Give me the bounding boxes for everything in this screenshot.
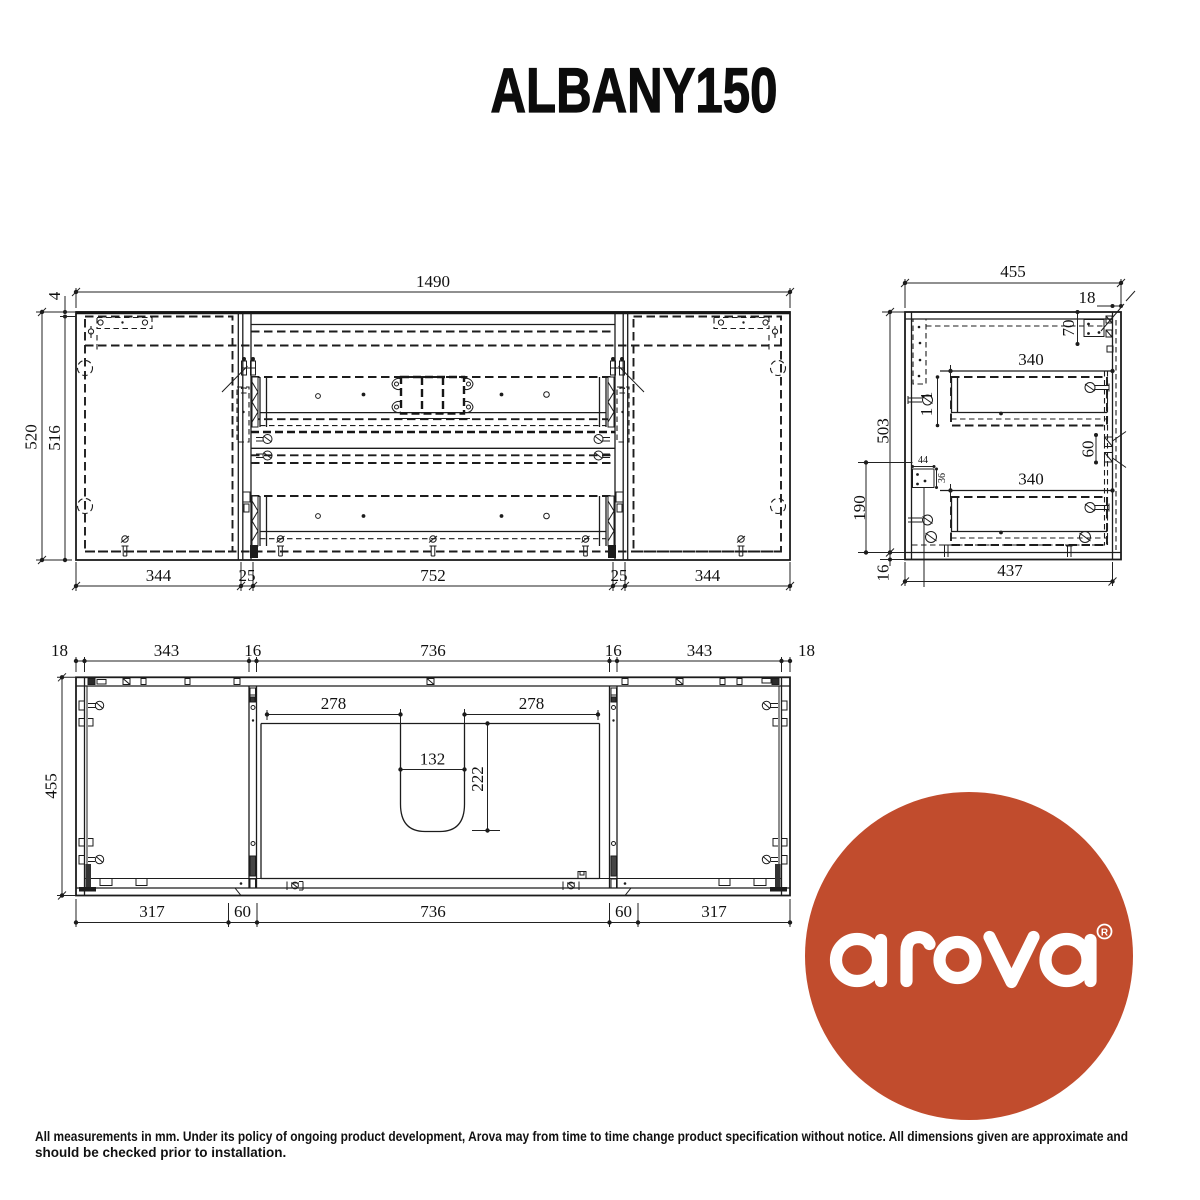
svg-text:340: 340 [1018, 350, 1044, 369]
svg-text:ALBANY150: ALBANY150 [491, 56, 778, 126]
svg-text:516: 516 [45, 425, 64, 451]
svg-text:278: 278 [519, 694, 545, 713]
svg-text:736: 736 [420, 641, 446, 660]
svg-text:1: 1 [917, 392, 936, 401]
svg-text:1: 1 [917, 408, 936, 417]
svg-text:16: 16 [244, 641, 261, 660]
svg-text:should be checked prior to ins: should be checked prior to installation. [35, 1145, 286, 1160]
svg-text:222: 222 [468, 766, 487, 792]
svg-text:503: 503 [874, 418, 893, 444]
svg-text:278: 278 [321, 694, 347, 713]
svg-text:25: 25 [611, 566, 628, 585]
svg-text:340: 340 [1018, 470, 1044, 489]
svg-text:16: 16 [605, 641, 622, 660]
svg-text:344: 344 [146, 566, 172, 585]
svg-text:36: 36 [937, 473, 948, 483]
svg-text:60: 60 [615, 902, 632, 921]
svg-text:18: 18 [1079, 288, 1096, 307]
svg-text:317: 317 [701, 902, 727, 921]
svg-text:437: 437 [997, 561, 1023, 580]
svg-text:1490: 1490 [416, 272, 450, 291]
svg-text:R: R [1101, 928, 1109, 939]
svg-text:343: 343 [687, 641, 713, 660]
svg-text:455: 455 [1000, 262, 1026, 281]
svg-text:60: 60 [1079, 441, 1098, 458]
svg-text:190: 190 [850, 495, 869, 521]
svg-text:44: 44 [918, 455, 928, 466]
svg-text:18: 18 [798, 641, 815, 660]
svg-text:752: 752 [420, 566, 446, 585]
svg-text:60: 60 [234, 902, 251, 921]
svg-text:317: 317 [139, 902, 165, 921]
svg-text:All measurements in mm. Under: All measurements in mm. Under its policy… [35, 1129, 1128, 1144]
svg-text:736: 736 [420, 902, 446, 921]
svg-text:16: 16 [874, 565, 893, 582]
svg-text:343: 343 [154, 641, 180, 660]
svg-text:455: 455 [42, 773, 61, 799]
svg-text:520: 520 [22, 424, 41, 450]
svg-text:132: 132 [420, 750, 446, 769]
svg-text:18: 18 [51, 641, 68, 660]
svg-text:25: 25 [239, 566, 256, 585]
svg-text:344: 344 [695, 566, 721, 585]
svg-text:70: 70 [1059, 320, 1078, 337]
svg-text:4: 4 [45, 291, 64, 300]
